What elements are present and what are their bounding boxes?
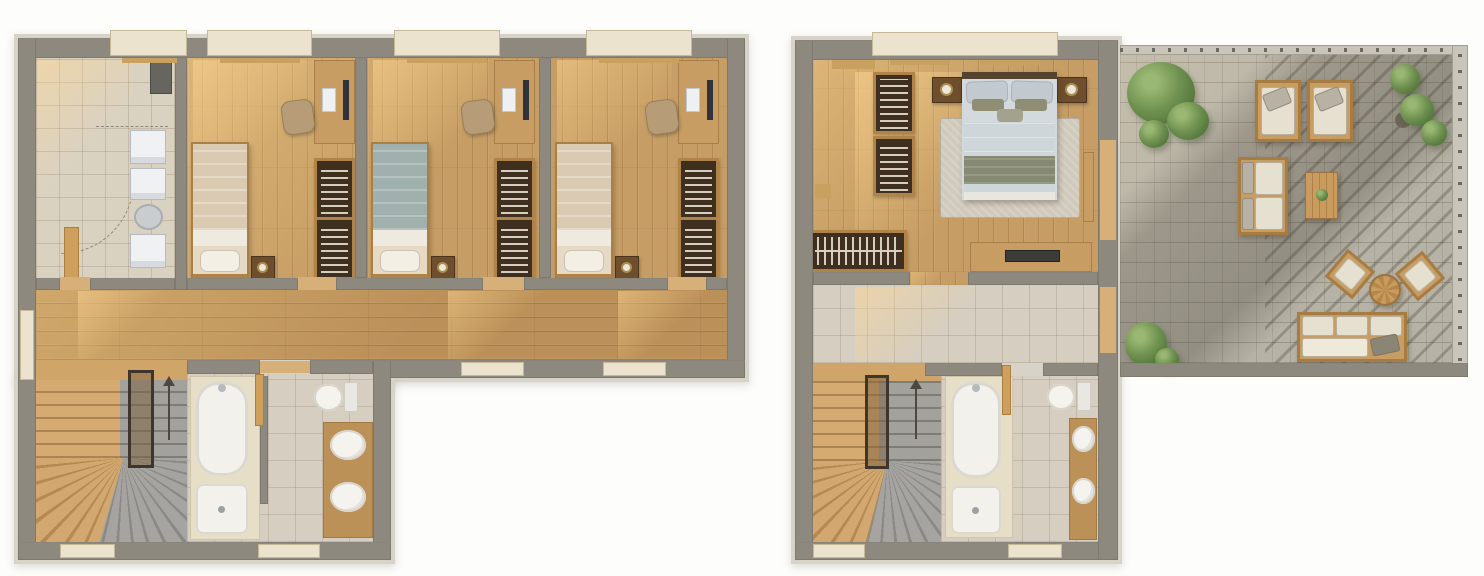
wall xyxy=(373,360,745,378)
wardrobe xyxy=(314,158,355,280)
wardrobe xyxy=(494,158,535,280)
toilet-tank xyxy=(1077,382,1091,411)
bed-sheet xyxy=(373,230,427,246)
partition-wall xyxy=(355,58,367,278)
toilet-bowl xyxy=(314,384,343,411)
landing-floor-tile xyxy=(813,285,1098,363)
bath-faucet xyxy=(218,384,226,392)
washbasin xyxy=(330,430,366,460)
table-lamp xyxy=(621,262,632,273)
sofa-back-cushion xyxy=(1302,316,1334,336)
bed-frame-foot xyxy=(964,192,1055,200)
toilet-bowl xyxy=(1047,384,1075,410)
closet-rod xyxy=(815,250,902,252)
coffee-table xyxy=(1305,172,1338,219)
three-seat-sofa xyxy=(1297,312,1407,362)
dryer xyxy=(130,168,166,200)
door-threshold xyxy=(60,277,90,290)
direction-arrow-head xyxy=(910,373,922,389)
center-cushion xyxy=(997,109,1023,122)
double-bed xyxy=(962,72,1057,200)
shower-drain xyxy=(218,506,225,513)
bed-sheet xyxy=(193,230,247,246)
nightstand xyxy=(932,77,962,103)
window xyxy=(813,544,865,558)
window xyxy=(603,362,666,376)
paper xyxy=(686,88,700,112)
paper xyxy=(322,88,336,112)
partition-wall xyxy=(310,360,373,374)
terrace-door-threshold xyxy=(1100,140,1116,240)
window xyxy=(461,362,524,376)
staircase xyxy=(36,360,187,542)
appliance xyxy=(130,234,166,268)
sofa-back-pillow xyxy=(1242,162,1254,194)
stairs-wood-treads xyxy=(36,380,120,458)
window-lintel xyxy=(599,58,679,63)
bathroom-door-leaf xyxy=(255,374,264,426)
wardrobe xyxy=(678,158,719,280)
shelving-unit xyxy=(873,136,915,196)
two-seat-sofa xyxy=(1238,157,1288,235)
table-lamp xyxy=(257,262,268,273)
washer xyxy=(130,130,166,164)
duvet xyxy=(373,144,427,230)
pillow xyxy=(200,250,240,272)
armchair-cushion xyxy=(1333,257,1367,291)
partition-wall xyxy=(187,360,260,374)
direction-arrow-head xyxy=(163,370,175,386)
wardrobe-shelf xyxy=(317,217,352,220)
desk-chair xyxy=(644,98,680,136)
bath-faucet xyxy=(972,384,980,392)
partition-wall xyxy=(90,278,175,290)
monitor xyxy=(523,80,529,120)
window xyxy=(110,30,187,56)
door-threshold xyxy=(483,277,524,290)
laundry-basket xyxy=(134,204,163,230)
door-threshold xyxy=(298,277,336,290)
sofa-seat-cushion xyxy=(1255,162,1283,195)
staircase xyxy=(813,363,941,542)
dashed-outline xyxy=(96,126,168,127)
window-lintel xyxy=(980,60,1040,65)
terrace-railing-top xyxy=(1120,45,1468,55)
window xyxy=(20,310,34,380)
bathtub xyxy=(196,382,248,476)
door-threshold xyxy=(668,277,706,290)
sofa-seat-cushion xyxy=(1302,338,1368,357)
desk xyxy=(678,60,719,144)
window xyxy=(207,30,312,56)
window-lintel xyxy=(122,58,177,63)
shelving-unit xyxy=(873,72,915,134)
folded-blanket xyxy=(964,156,1055,184)
paper xyxy=(502,88,516,112)
folded-clothes xyxy=(880,143,908,191)
floor-plan-left xyxy=(18,30,745,562)
partition-wall xyxy=(706,278,727,290)
desk-chair xyxy=(280,98,316,136)
tree-canopy xyxy=(1139,120,1169,148)
stairwell-railing xyxy=(128,370,154,468)
bathtub xyxy=(951,382,1001,478)
walk-in-closet xyxy=(810,230,907,272)
hanging-clothes xyxy=(321,166,348,214)
partition-wall xyxy=(1043,363,1098,376)
desk-chair xyxy=(460,98,496,136)
single-bed xyxy=(371,142,429,282)
window xyxy=(1008,544,1062,558)
bed-sheet xyxy=(557,230,611,246)
washbasin xyxy=(1072,478,1095,504)
window xyxy=(872,32,1058,56)
sofa-back-cushion xyxy=(1336,316,1368,336)
washbasin xyxy=(330,482,366,512)
bench xyxy=(1083,152,1094,222)
washbasin xyxy=(1072,426,1095,452)
floor-plan-render xyxy=(0,0,1484,576)
monitor xyxy=(343,80,349,120)
terrace-door-threshold xyxy=(1100,287,1116,353)
round-side-table xyxy=(1369,274,1401,306)
monitor xyxy=(707,80,713,120)
hanging-clothes xyxy=(501,225,528,273)
potted-plant xyxy=(1421,120,1447,146)
shower-drain xyxy=(972,507,979,514)
window xyxy=(586,30,692,56)
folded-clothes xyxy=(880,79,908,129)
pillow xyxy=(380,250,420,272)
lounge-chair xyxy=(1255,80,1301,142)
hanging-clothes xyxy=(501,166,528,214)
hallway-wood-floor xyxy=(36,290,727,360)
partition-wall xyxy=(336,278,483,290)
stairwell-railing xyxy=(865,375,889,469)
bathroom-door-leaf xyxy=(1002,365,1011,415)
window xyxy=(258,544,320,558)
window xyxy=(394,30,500,56)
nightstand xyxy=(1057,77,1087,103)
desk xyxy=(494,60,535,144)
sofa-back-cushion xyxy=(1370,316,1402,336)
pillow xyxy=(564,250,604,272)
hanging-clothes xyxy=(685,225,712,273)
hanging-clothes xyxy=(321,225,348,273)
table-lamp xyxy=(437,262,448,273)
partition-wall xyxy=(524,278,668,290)
hanging-clothes xyxy=(685,166,712,214)
wall-shelf xyxy=(815,184,831,198)
partition-wall xyxy=(968,272,1098,285)
table-plant xyxy=(1316,189,1328,201)
headboard xyxy=(962,72,1057,79)
wall xyxy=(18,38,36,560)
wall xyxy=(727,38,745,378)
desk xyxy=(970,242,1092,272)
lounge-chair xyxy=(1307,80,1353,142)
terrace-parapet-wall xyxy=(1120,363,1468,377)
partition-wall xyxy=(813,272,910,285)
utility-cabinet xyxy=(150,60,172,94)
direction-arrow-line xyxy=(168,384,170,440)
laptop xyxy=(1005,250,1060,262)
single-bed xyxy=(191,142,249,282)
railing-posts xyxy=(1120,48,1468,52)
single-bed xyxy=(555,142,613,282)
doorway-wood-floor xyxy=(910,272,968,285)
floor-plan-right xyxy=(795,32,1470,562)
window-lintel xyxy=(407,58,487,63)
table-lamp xyxy=(1065,83,1078,96)
direction-arrow-line xyxy=(915,387,917,439)
table-lamp xyxy=(940,83,953,96)
toilet-tank xyxy=(344,382,358,412)
wardrobe-shelf xyxy=(681,217,716,220)
window xyxy=(60,544,115,558)
railing-posts xyxy=(1458,45,1462,377)
window-lintel xyxy=(220,58,300,63)
partition-wall xyxy=(175,58,187,290)
partition-wall xyxy=(539,58,551,278)
wall xyxy=(373,360,391,560)
wall xyxy=(795,40,813,560)
partition-wall xyxy=(925,363,1002,376)
partition-wall xyxy=(36,278,60,290)
partition-wall xyxy=(187,278,298,290)
window-lintel xyxy=(890,60,950,65)
sofa-accent-pillow xyxy=(1369,333,1400,356)
door-threshold xyxy=(260,361,310,373)
armchair-cushion xyxy=(1403,259,1437,293)
potted-plant xyxy=(1390,64,1420,94)
terrace-railing-right xyxy=(1452,45,1468,377)
sofa-back-pillow xyxy=(1242,198,1254,230)
wardrobe-shelf xyxy=(497,217,532,220)
open-door-leaf xyxy=(64,227,79,283)
duvet xyxy=(557,144,611,230)
duvet xyxy=(193,144,247,230)
sofa-seat-cushion xyxy=(1255,197,1283,230)
desk xyxy=(314,60,355,144)
tree-canopy xyxy=(1167,102,1209,140)
wall-shelf xyxy=(832,60,875,69)
